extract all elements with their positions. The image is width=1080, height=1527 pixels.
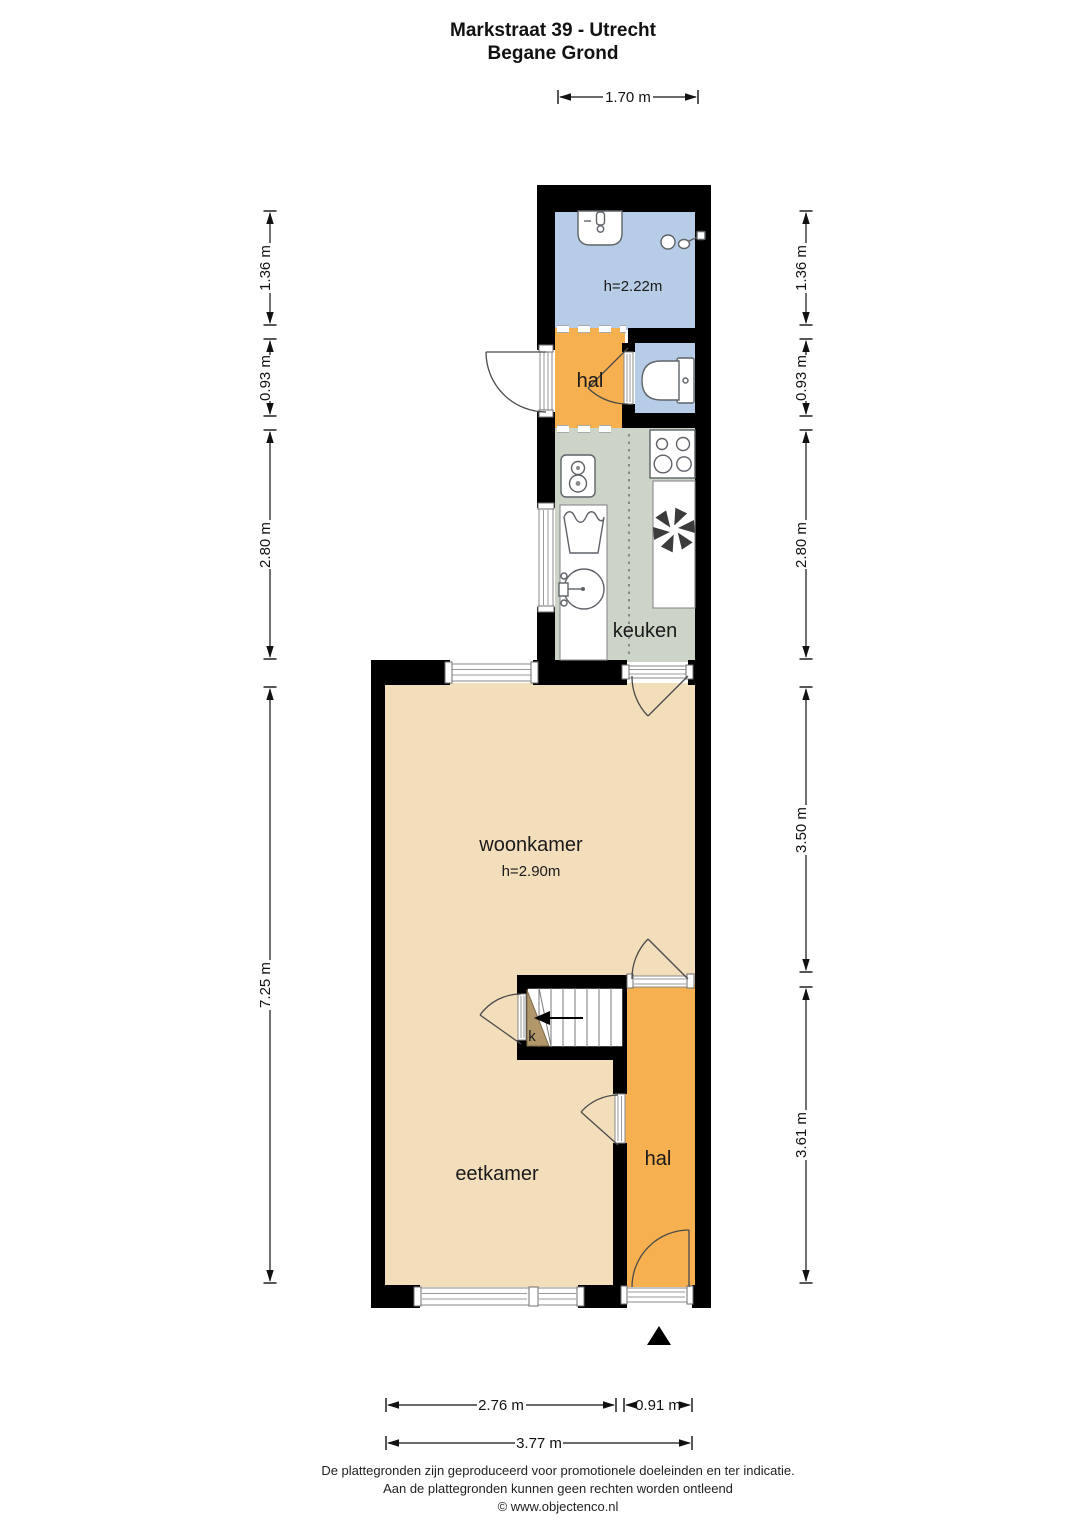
dim-right-hal-eetkamer: 3.61 m	[793, 987, 813, 1283]
dim-right-keuken-label: 2.80 m	[793, 522, 810, 568]
floorplan-page: Markstraat 39 - Utrecht Begane Grond	[0, 0, 1080, 1527]
dim-right-badkamer: 1.36 m	[793, 211, 813, 325]
dim-bottom-eetkamer-label: 2.76 m	[478, 1397, 524, 1414]
dim-right-woonkamer: 3.50 m	[793, 687, 813, 972]
floorplan-canvas: Markstraat 39 - Utrecht Begane Grond	[0, 0, 1080, 1527]
dim-bottom-total-label: 3.77 m	[516, 1435, 562, 1452]
dim-bottom-total: 3.77 m	[386, 1435, 692, 1452]
stairs: k	[527, 988, 623, 1047]
hal-floor	[625, 985, 695, 1287]
eetkamer-windows	[414, 1287, 584, 1306]
dim-left-woon-eetkamer-label: 7.25 m	[257, 962, 274, 1008]
dim-right-hal: 0.93 m	[793, 339, 813, 416]
footer-line-2: Aan de plattegronden kunnen geen rechten…	[383, 1481, 733, 1496]
woonkamer-label: woonkamer	[478, 834, 583, 856]
dim-left-hal: 0.93 m	[257, 339, 277, 416]
dim-left-woon-eetkamer: 7.25 m	[257, 687, 277, 1283]
badkamer-floor	[555, 212, 695, 330]
footer-line-1: De plattegronden zijn geproduceerd voor …	[321, 1463, 794, 1478]
dim-right-keuken: 2.80 m	[793, 430, 813, 659]
title-line-2: Begane Grond	[488, 43, 619, 64]
dim-left-keuken-label: 2.80 m	[257, 522, 274, 568]
plan-title: Markstraat 39 - Utrecht Begane Grond	[450, 20, 657, 64]
keuken-right-counter	[653, 481, 695, 608]
round-sink-icon	[559, 569, 604, 609]
dim-right-badkamer-label: 1.36 m	[793, 245, 810, 291]
footer-line-3: © www.objectenco.nl	[498, 1499, 619, 1514]
dim-left-badkamer: 1.36 m	[257, 211, 277, 325]
dim-top-width: 1.70 m	[558, 89, 698, 106]
hal-boven-label: hal	[577, 370, 604, 392]
dim-left-badkamer-label: 1.36 m	[257, 245, 274, 291]
woonkamer-height-label: h=2.90m	[502, 863, 561, 880]
dim-left-hal-label: 0.93 m	[257, 355, 274, 401]
dim-bottom-hal: 0.91 m	[624, 1397, 692, 1414]
keuken-window	[538, 503, 554, 612]
keuken-label: keuken	[613, 620, 678, 642]
dim-right-hal-label: 0.93 m	[793, 355, 810, 401]
back-door	[486, 345, 553, 417]
dim-left-keuken: 2.80 m	[257, 430, 277, 659]
boiler-icon	[561, 455, 595, 497]
trapkast-label: k	[528, 1028, 536, 1045]
dim-right-woonkamer-label: 3.50 m	[793, 807, 810, 853]
title-line-1: Markstraat 39 - Utrecht	[450, 20, 657, 41]
toilet-icon	[642, 358, 694, 403]
woonkamer-window	[445, 662, 538, 683]
eetkamer-label: eetkamer	[455, 1163, 539, 1185]
dim-right-hal-eetkamer-label: 3.61 m	[793, 1112, 810, 1158]
stove-icon	[650, 430, 695, 478]
washbasin-icon	[578, 211, 622, 245]
hal-label: hal	[645, 1148, 672, 1170]
badkamer-height-label: h=2.22m	[604, 278, 663, 295]
dim-bottom-eetkamer: 2.76 m	[386, 1397, 616, 1414]
dim-top-width-label: 1.70 m	[605, 89, 651, 106]
entrance-marker-icon	[647, 1326, 671, 1345]
dim-bottom-hal-label: 0.91 m	[635, 1397, 681, 1414]
footer-disclaimer: De plattegronden zijn geproduceerd voor …	[321, 1463, 794, 1514]
keuken-left-counter	[559, 505, 607, 660]
